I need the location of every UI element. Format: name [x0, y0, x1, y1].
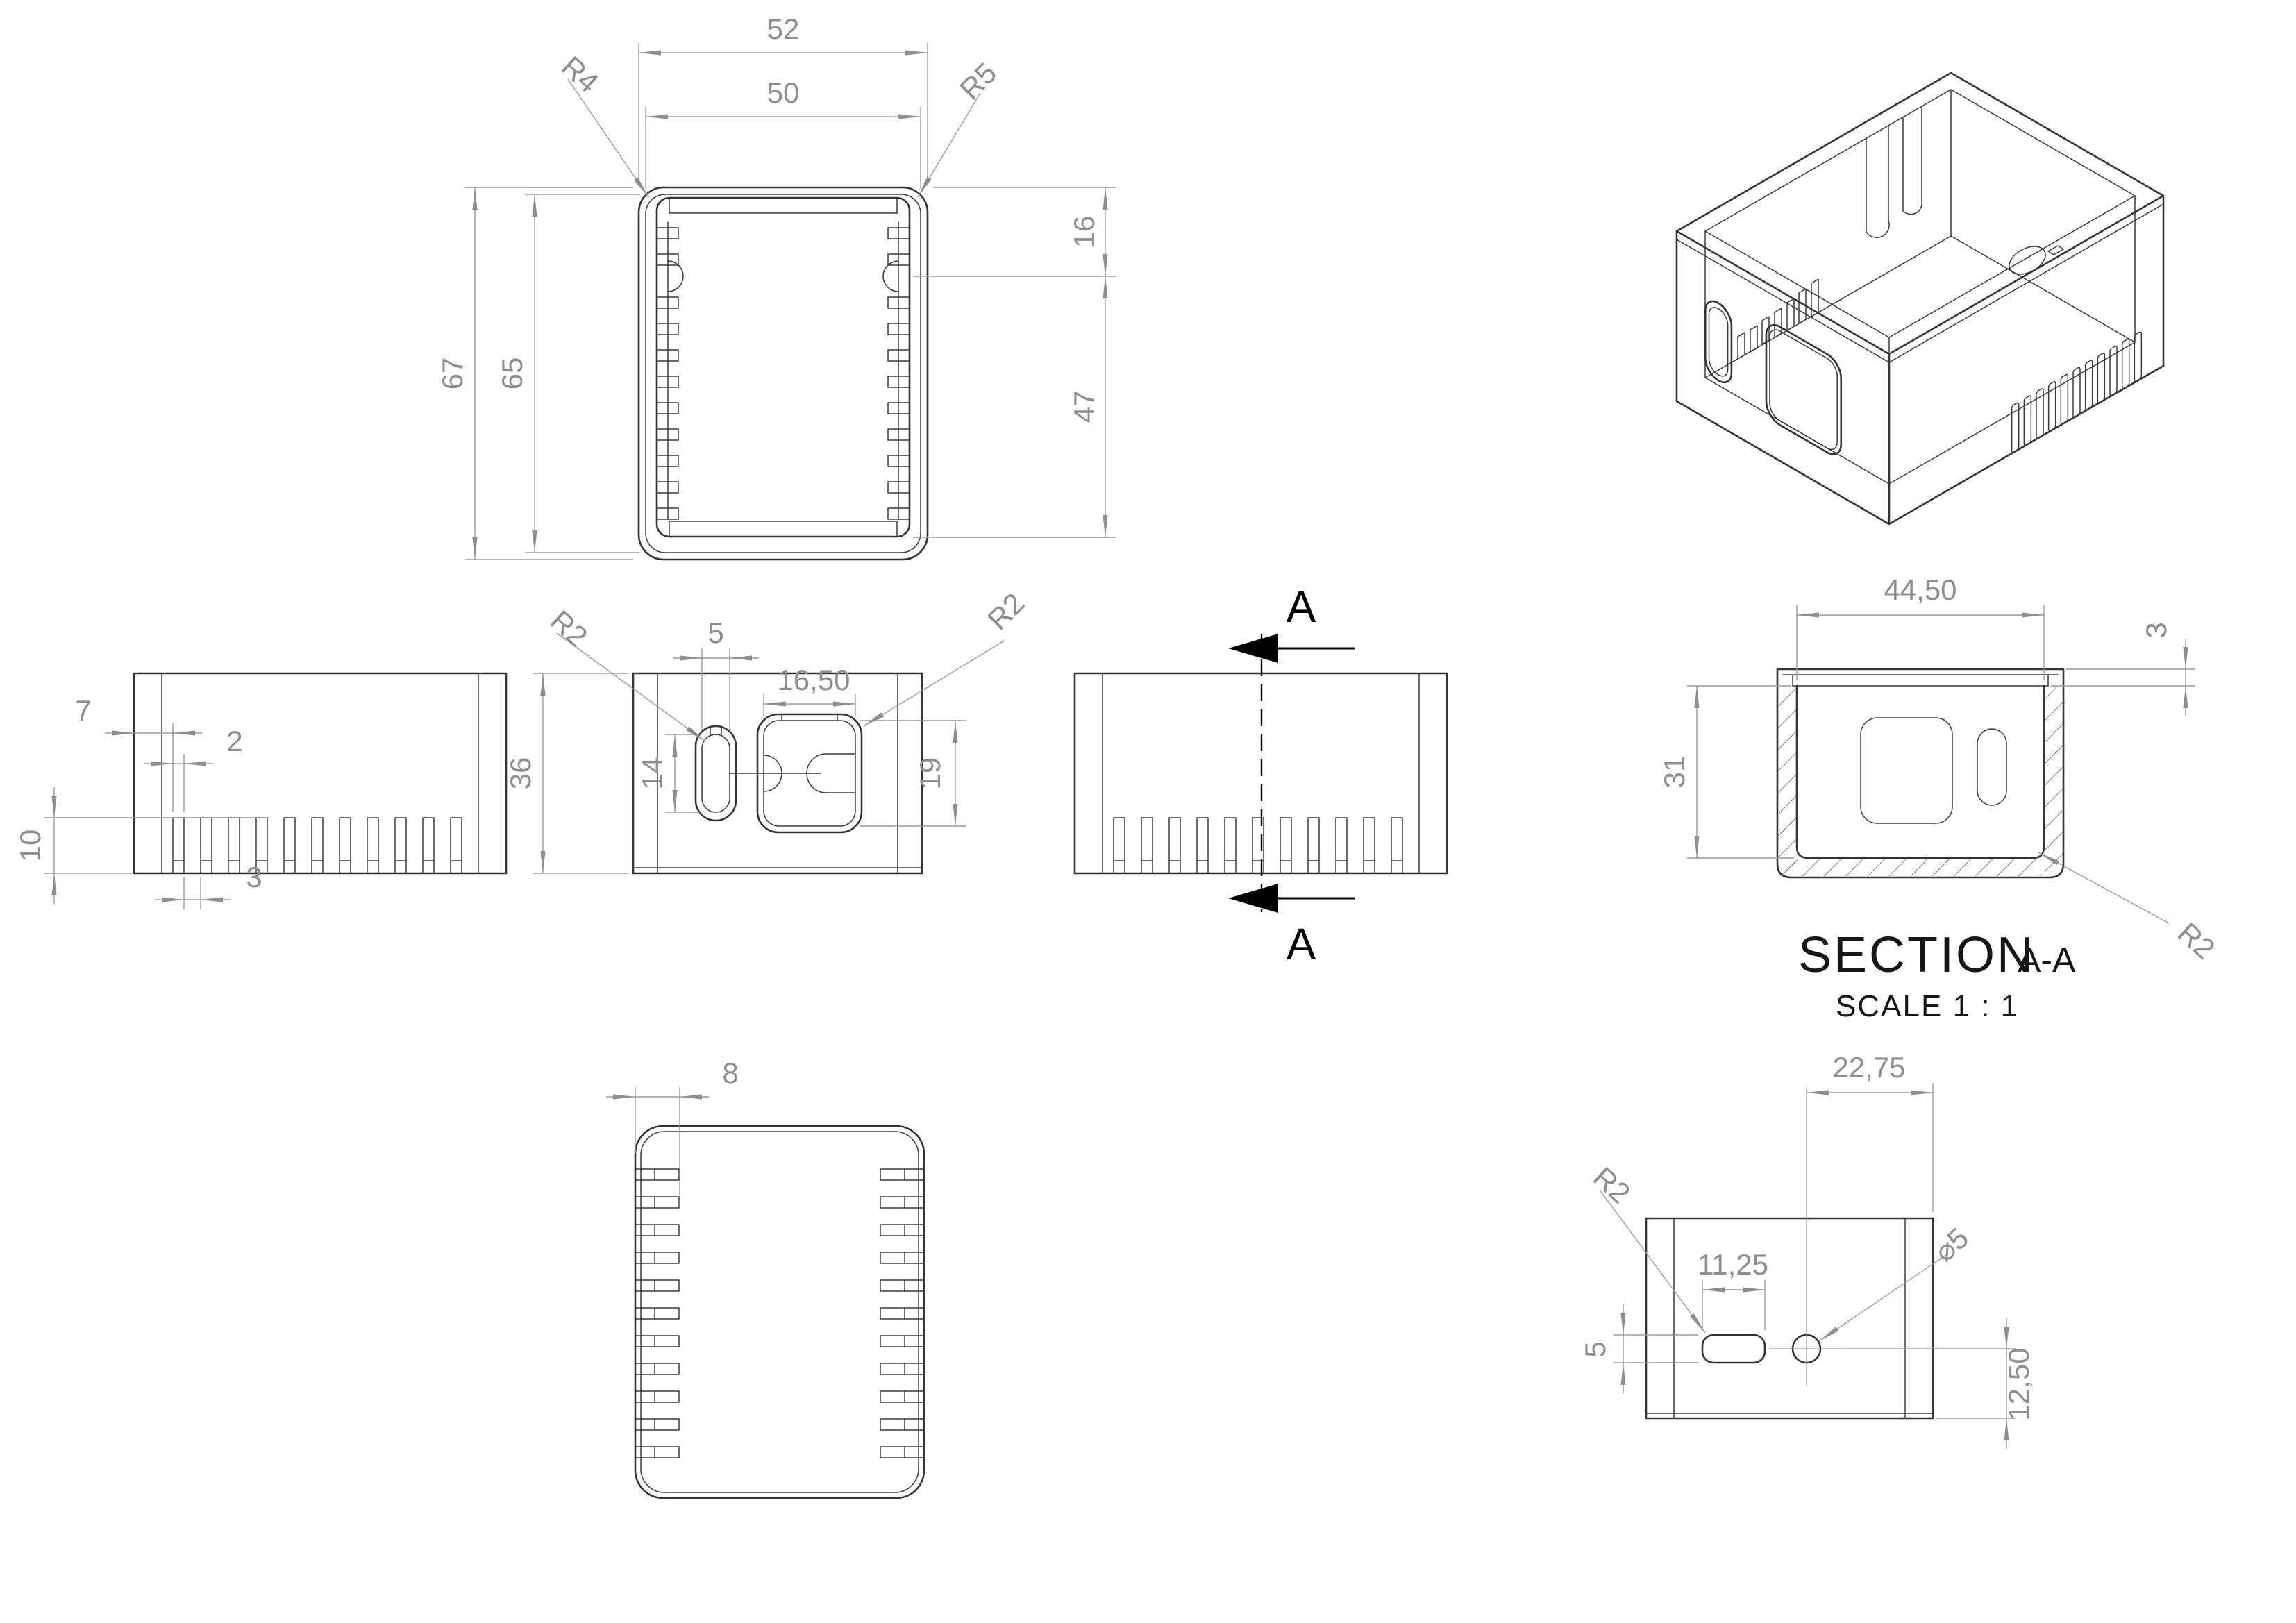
drawing-sheet: 52 50 R4 R5 67 65	[0, 0, 2296, 1623]
dim-back-slot-length: 11,25	[1698, 1248, 1768, 1330]
section-title: SECTION	[1798, 927, 2035, 983]
dim-label: R2	[1587, 1161, 1636, 1210]
section-scale-note: SCALE 1 : 1	[1836, 989, 2019, 1023]
dim-label: 11,25	[1698, 1248, 1768, 1281]
iso-rim-tab	[2048, 246, 2063, 255]
section-cut-line: A A	[1228, 582, 1355, 969]
dim-label: R4	[555, 50, 605, 99]
dim-top-corner-left: R4	[555, 50, 648, 197]
dim-label: 67	[436, 358, 469, 390]
section-title-ref: A-A	[2018, 941, 2076, 979]
section-arrow-top	[1228, 634, 1278, 663]
dim-label: 52	[767, 12, 800, 45]
iso-side-face-slots	[2012, 331, 2142, 453]
dim-label: 19	[914, 757, 946, 790]
dim-label: ⌀5	[1928, 1221, 1975, 1268]
dim-label: 5	[1579, 1341, 1611, 1357]
dim-section-inner-depth: 31	[1658, 686, 1794, 858]
dim-back-hole-offset-x: 22,75	[1807, 1051, 1933, 1212]
section-label-bottom: A	[1287, 919, 1316, 969]
dim-back-slot-height: 5	[1579, 1304, 1698, 1393]
dim-front-cutout-height: 19	[860, 721, 966, 826]
section-label-top: A	[1287, 582, 1316, 632]
top-view-geometry	[639, 187, 928, 560]
back-geometry	[1646, 1087, 1933, 1418]
left-side-view: 7 2 10 3	[14, 673, 506, 909]
dim-label: 14	[636, 757, 669, 790]
dim-label: 7	[75, 694, 91, 727]
back-view: 22,75 11,25 R2 ⌀5 5	[1579, 1051, 2035, 1449]
right-side-view: A A	[1075, 582, 1447, 969]
dim-label: 10	[14, 830, 47, 862]
dim-left-slot-offset: 7	[75, 694, 202, 812]
dim-label: 47	[1068, 391, 1100, 423]
bottom-view: 8	[606, 1057, 924, 1498]
dim-label: 44,50	[1884, 573, 1956, 606]
front-geometry	[633, 673, 922, 873]
iso-interior-ribs	[1866, 107, 1922, 237]
dim-label: 5	[707, 616, 723, 649]
dim-label: 12,50	[2002, 1347, 2035, 1420]
dim-front-cutout-width: 16,50	[764, 664, 855, 716]
dim-top-rim-offset: 16	[914, 187, 1116, 276]
dim-back-hole-diameter: ⌀5	[1819, 1221, 1975, 1341]
dim-left-slot-gap: 3	[155, 861, 262, 909]
section-geometry	[1777, 669, 2063, 877]
dim-label: R2	[544, 604, 594, 653]
drawing-canvas: 52 50 R4 R5 67 65	[0, 0, 2296, 1623]
bottom-geometry	[635, 1126, 924, 1498]
dim-left-slot-height: 10	[14, 787, 269, 904]
dim-label: R2	[2172, 916, 2221, 966]
dim-front-oval-height: 14	[636, 734, 700, 812]
dim-label: 3	[246, 861, 262, 893]
dim-bottom-slot-depth: 8	[606, 1057, 739, 1205]
section-view: 44,50 3 31 R2 SECTION A-A SCALE 1 : 1	[1658, 573, 2221, 1023]
dim-label: 22,75	[1832, 1051, 1905, 1084]
dim-top-inner-width: 50	[646, 76, 921, 189]
section-title-block: SECTION A-A SCALE 1 : 1	[1798, 927, 2076, 1023]
dim-label: 3	[2140, 622, 2172, 638]
dim-left-slot-width: 2	[144, 725, 243, 812]
front-view: 36 5 16,50 14 19	[504, 587, 1030, 873]
dim-label: R5	[953, 56, 1003, 106]
iso-interior-teeth	[1738, 279, 1818, 359]
top-view: 52 50 R4 R5 67 65	[436, 12, 1116, 560]
iso-front-face-cutouts	[1705, 284, 1841, 460]
dim-front-height: 36	[504, 673, 628, 873]
isometric-view	[1677, 73, 2163, 524]
section-arrow-bottom	[1228, 884, 1278, 913]
dim-front-corner-right: R2	[864, 587, 1030, 726]
dim-label: 16,50	[777, 664, 850, 696]
dim-label: 36	[504, 757, 537, 790]
dim-label: 50	[767, 76, 800, 109]
dim-label: 16	[1068, 216, 1100, 249]
left-side-geometry	[134, 673, 506, 873]
dim-back-hole-offset-y: 12,50	[1844, 1318, 2035, 1449]
dim-top-inner-height: 65	[496, 194, 640, 553]
dim-label: 65	[496, 358, 528, 390]
dim-label: 8	[722, 1057, 738, 1089]
dim-label: 31	[1658, 756, 1691, 789]
dim-section-inner-width: 44,50	[1797, 573, 2044, 680]
dim-top-corner-right: R5	[918, 56, 1003, 197]
dim-label: R2	[981, 587, 1030, 636]
dim-section-lip-height: 3	[2051, 622, 2195, 716]
dim-top-body-depth: 47	[914, 276, 1116, 537]
dim-label: 2	[226, 725, 242, 757]
